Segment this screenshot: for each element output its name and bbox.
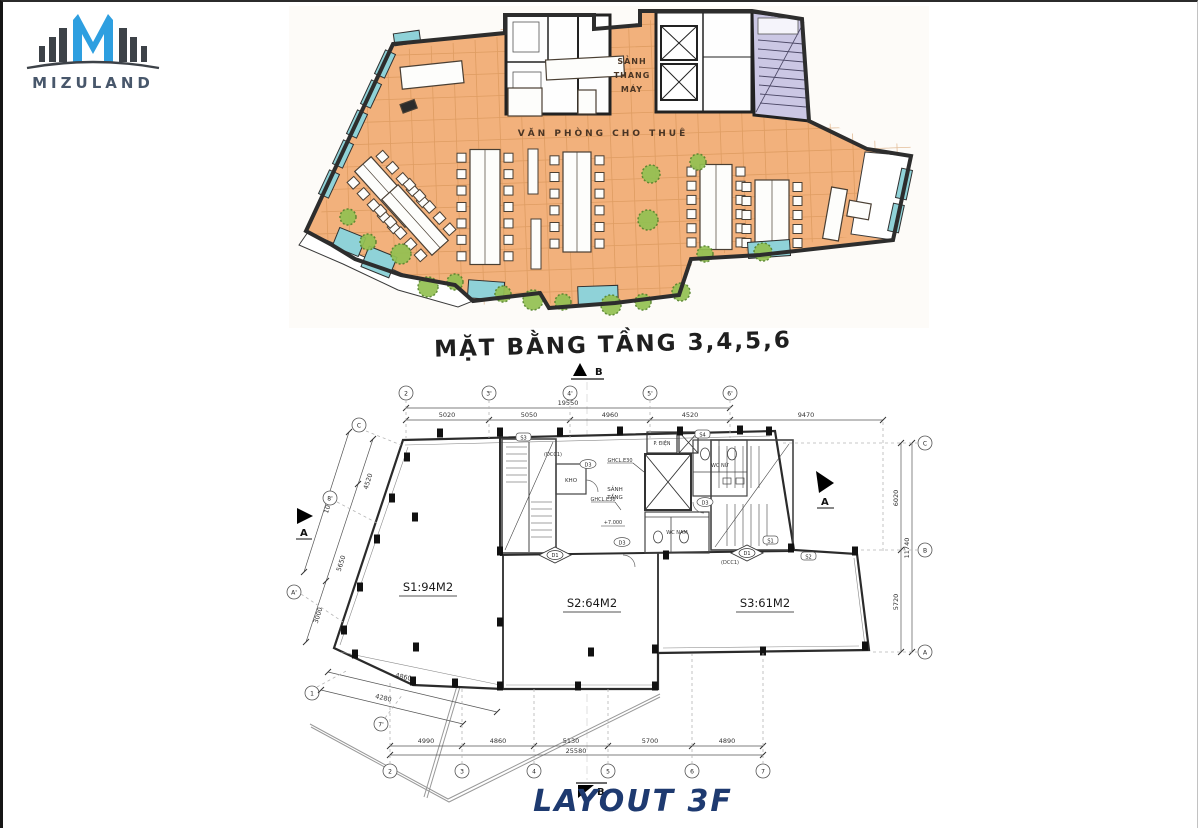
grid-bubble-label: 1 — [310, 691, 314, 698]
office-chair — [550, 206, 559, 215]
office-chair — [504, 170, 513, 179]
section-b-top-label: B — [595, 367, 603, 378]
tree-icon — [360, 234, 376, 250]
office-chair — [687, 224, 696, 233]
area-s2-label: S2:64M2 — [567, 596, 617, 610]
structural-column — [497, 682, 503, 691]
office-chair — [504, 186, 513, 195]
tree-icon — [340, 209, 356, 225]
dim: 5020 — [439, 411, 456, 419]
dcc-label: (DCC1) — [721, 560, 739, 566]
dim: 4520 — [682, 411, 699, 419]
wc-women-label: WC NỮ — [711, 462, 729, 469]
office-chair — [595, 239, 604, 248]
office-chair — [504, 153, 513, 162]
dim-tick — [318, 687, 324, 693]
dim: 3000 — [312, 606, 325, 624]
dim-tick — [301, 569, 307, 575]
office-chair — [793, 225, 802, 234]
structural-column — [575, 682, 581, 691]
dim: 4520 — [362, 472, 375, 490]
dim-tick — [355, 481, 361, 487]
dim: 4990 — [418, 737, 435, 745]
elevator-lobby-label: SẢNH — [617, 55, 646, 66]
office-chair — [736, 167, 745, 176]
office-chair — [550, 173, 559, 182]
elevator-lobby-label: MÁY — [621, 83, 643, 94]
office-chair — [687, 181, 696, 190]
office-chair — [595, 173, 604, 182]
grid-bubble-label: 7' — [378, 722, 384, 729]
grid-bubble-label: 6' — [727, 391, 733, 398]
structural-column — [788, 544, 794, 553]
s4-tag: S4 — [699, 433, 705, 439]
structural-column — [652, 645, 658, 654]
office-cabinet — [531, 219, 541, 269]
structural-column — [766, 427, 772, 436]
storage-label: KHO — [565, 478, 578, 484]
dim-tick — [346, 429, 352, 435]
structural-column — [404, 453, 410, 462]
office-chair — [595, 156, 604, 165]
dim: 6020 — [892, 490, 900, 507]
dim-tick — [323, 578, 329, 584]
structural-column — [862, 642, 868, 651]
office-chair — [457, 186, 466, 195]
scanned-floorplan-page: MIZULAND — [0, 0, 1198, 828]
grid-bubble-label: 5' — [647, 391, 653, 398]
sketch-core-elevators — [656, 12, 752, 112]
grid-leader-line — [301, 594, 343, 622]
structural-column — [852, 547, 858, 556]
dim-tick — [494, 709, 500, 715]
section-a-left-icon — [297, 508, 313, 524]
area-s3-label: S3:61M2 — [740, 596, 790, 610]
structural-column — [663, 551, 669, 560]
d3-tag: D3 — [584, 463, 591, 469]
s1-tag: S1 — [767, 539, 773, 545]
grid-bubble-label: 7 — [761, 769, 765, 776]
office-chair — [457, 252, 466, 261]
dim: 4890 — [719, 737, 736, 745]
office-chair — [457, 219, 466, 228]
office-chair — [742, 197, 751, 206]
structural-column — [497, 428, 503, 437]
office-chair — [687, 210, 696, 219]
office-chair — [687, 238, 696, 247]
office-chair — [504, 235, 513, 244]
dim: 5650 — [335, 554, 348, 572]
grid-bubble-label: C — [923, 441, 927, 448]
sketch-stair — [752, 12, 809, 121]
grid-bubble-label: 4' — [567, 391, 573, 398]
office-chair — [742, 225, 751, 234]
office-chair — [595, 189, 604, 198]
office-chair — [793, 239, 802, 248]
d3-tag: D3 — [701, 501, 708, 507]
structural-column — [352, 650, 358, 659]
tree-icon — [391, 244, 411, 264]
sketch-floor-plan: SẢNH THANG MÁY VĂN PHÒNG CHO THUÊ — [289, 6, 939, 333]
office-chair — [595, 223, 604, 232]
s2-tag: S2 — [805, 555, 811, 561]
tree-icon — [638, 210, 658, 230]
dim: 9470 — [798, 411, 815, 419]
grid-bubble-label: 2 — [404, 391, 408, 398]
tree-icon — [690, 154, 706, 170]
office-chair — [742, 183, 751, 192]
dim-tick — [325, 669, 331, 675]
section-a-left-label: A — [300, 528, 308, 539]
grid-leader-line — [366, 431, 401, 445]
section-a-right-icon — [816, 471, 834, 493]
grid-bubble-label: A' — [291, 590, 297, 597]
grid-bubble-label: B — [923, 548, 927, 555]
grid-leader-line — [317, 670, 348, 687]
office-chair — [504, 252, 513, 261]
office-for-rent-label: VĂN PHÒNG CHO THUÊ — [518, 127, 688, 139]
office-chair — [457, 170, 466, 179]
dim: 5050 — [521, 411, 538, 419]
grid-bubble-label: C — [357, 423, 361, 430]
dim-total-bottom: 25580 — [566, 747, 587, 755]
grid-bubble-label: 3' — [486, 391, 492, 398]
structural-column — [677, 427, 683, 436]
dim: 5130 — [563, 737, 580, 745]
office-chair — [550, 239, 559, 248]
grid-leader-line — [337, 502, 377, 523]
area-s1-label: S1:94M2 — [403, 580, 453, 594]
dim-tick — [370, 436, 376, 442]
office-cabinet — [528, 149, 538, 194]
structural-column — [452, 679, 458, 688]
grid-bubble-label: 4 — [532, 769, 536, 776]
d3-tag: D3 — [618, 541, 625, 547]
structural-column — [412, 513, 418, 522]
office-chair — [550, 189, 559, 198]
office-chair — [550, 223, 559, 232]
dim: 4960 — [602, 411, 619, 419]
layout-title: LAYOUT 3F — [433, 784, 833, 819]
lobby-label: SẢNH — [607, 485, 623, 493]
structural-column — [437, 429, 443, 438]
structural-column — [389, 494, 395, 503]
dim: 5720 — [892, 594, 900, 611]
elevator-lobby-label: THANG — [614, 71, 651, 80]
office-table — [742, 180, 802, 250]
dcc-label: (DCC1) — [544, 452, 562, 458]
structural-column — [413, 643, 419, 652]
structural-column — [341, 626, 347, 635]
structural-column — [737, 426, 743, 435]
grid-bubble-label: 2 — [388, 769, 392, 776]
structural-column — [410, 677, 416, 686]
wc-men-label: WC NAM — [666, 530, 688, 536]
structural-column — [497, 547, 503, 556]
structural-column — [374, 535, 380, 544]
office-chair — [595, 206, 604, 215]
s3-tag: S3 — [520, 436, 526, 442]
d1-tag: D1 — [551, 553, 558, 559]
level-label: +7.000 — [604, 520, 623, 526]
plans-canvas: SẢNH THANG MÁY VĂN PHÒNG CHO THUÊ — [3, 2, 1198, 828]
structural-column — [357, 583, 363, 592]
grid-bubble-label: 3 — [460, 769, 464, 776]
office-chair — [457, 203, 466, 212]
office-chair — [550, 156, 559, 165]
cad-floor-plan: D1 D1 S3 S4 S1 S2 D3 D3 D3 — [287, 363, 932, 802]
office-chair — [504, 203, 513, 212]
dim-tick — [303, 639, 309, 645]
dim: 5700 — [642, 737, 659, 745]
structural-column — [652, 682, 658, 691]
structural-column — [617, 427, 623, 436]
section-a-right-label: A — [821, 497, 829, 508]
dim-total-right: 11740 — [903, 538, 911, 559]
dim: 4860 — [490, 737, 507, 745]
dim-tick — [460, 721, 466, 727]
d1-tag: D1 — [743, 551, 750, 557]
office-chair — [457, 235, 466, 244]
grid-bubble-label: 5 — [606, 769, 610, 776]
office-chair — [793, 183, 802, 192]
grid-bubble-label: 8' — [327, 496, 333, 503]
office-chair — [504, 219, 513, 228]
structural-column — [557, 428, 563, 437]
dim-total-top: 19550 — [558, 399, 579, 407]
structural-column — [497, 618, 503, 627]
office-chair — [457, 153, 466, 162]
tree-icon — [642, 165, 660, 183]
grid-bubble-label: 6 — [690, 769, 694, 776]
section-b-top-icon — [573, 363, 587, 376]
structural-column — [588, 648, 594, 657]
office-chair — [742, 211, 751, 220]
office-chair — [793, 197, 802, 206]
office-chair — [687, 195, 696, 204]
office-chair — [793, 211, 802, 220]
